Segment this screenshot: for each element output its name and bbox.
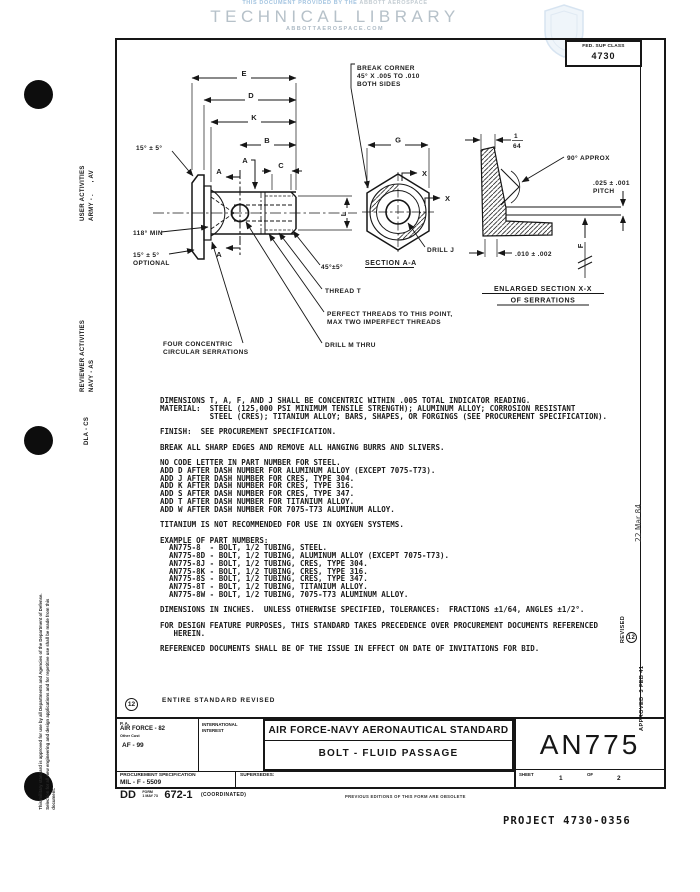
label-pitch-word: PITCH (593, 188, 615, 195)
label-drill-j: DRILL J (427, 247, 454, 254)
watermark-provided-line: THIS DOCUMENT PROVIDED BY THE ABBOTT AER… (150, 1, 520, 7)
label-break-corner-3: BOTH SIDES (357, 81, 401, 88)
international-interest-2: INTEREST (202, 728, 224, 733)
watermark-url: ABBOTTAEROSPACE.COM (150, 27, 520, 33)
revised-label: REVISED (620, 616, 626, 643)
label-perfect-threads-1: PERFECT THREADS TO THIS POINT, (327, 311, 453, 318)
label-enlarged-section-1: ENLARGED SECTION X-X (494, 286, 592, 293)
sheet-row: SHEET 1 OF 2 (514, 769, 666, 787)
dim-label-d: D (248, 91, 254, 100)
label-optional-angle: 15° ± 5° (133, 251, 159, 259)
dd-form-dd: DD (120, 789, 136, 801)
previous-editions-note: PREVIOUS EDITIONS OF THIS FORM ARE OBSOL… (345, 794, 466, 799)
dd-form-date: 1 MAY 73 (142, 794, 158, 798)
title-block: P. A. AIR FORCE - 82 Other Cust AF - 99 … (115, 717, 666, 789)
dim-label-k: K (251, 113, 257, 122)
label-90-approx: 90° APPROX (567, 154, 610, 162)
part-title: BOLT - FLUID PASSAGE (265, 748, 512, 759)
label-head-angle: 15° ± 5° (136, 144, 162, 152)
label-break-corner-1: BREAK CORNER (357, 65, 415, 72)
revision-note-circle: 12 (125, 693, 138, 711)
supersedes-label: SUPERSEDES: (240, 773, 274, 778)
dim-label-b: B (264, 136, 270, 145)
label-perfect-threads-2: MAX TWO IMPERFECT THREADS (327, 319, 441, 326)
procurement-spec-label: PROCUREMENT SPECIFICATION (120, 773, 196, 778)
standard-title-cell: AIR FORCE-NAVY AERONAUTICAL STANDARD BOL… (263, 719, 514, 771)
pa-value: AIR FORCE - 82 (120, 726, 165, 732)
dla-margin: DLA - CS (83, 417, 92, 445)
sheet-total: 2 (617, 775, 621, 782)
label-serration-width: .010 ± .002 (515, 251, 552, 258)
international-interest-1: INTERNATIONAL (202, 722, 238, 727)
label-thread-t: THREAD T (325, 288, 361, 295)
punch-hole-top (24, 80, 53, 109)
sheet-label: SHEET (519, 772, 534, 777)
leader-lines (212, 222, 324, 343)
watermark-brand: ABBOTT AEROSPACE (359, 0, 427, 6)
sheet-of-label: OF (587, 772, 593, 777)
dim-label-c: C (278, 161, 284, 170)
dim-label-g: G (395, 136, 401, 145)
scanned-standard-page: THIS DOCUMENT PROVIDED BY THE ABBOTT AER… (0, 0, 700, 892)
axis-label-x-side: X (445, 194, 450, 203)
procurement-spec-value: MIL - F - 5509 (120, 779, 161, 786)
watermark-title: TECHNICAL LIBRARY (150, 8, 520, 25)
section-arrow-label-a-top: A (216, 167, 222, 176)
revised-number-badge: 12 (626, 632, 637, 643)
dim-frac-numerator: 1 (514, 133, 518, 140)
title-block-divider (235, 771, 236, 787)
approved-date-margin: APPROVED 3 FEB 41 (639, 666, 645, 731)
axis-label-x-top: X (422, 169, 427, 178)
dd-form-line: DD FORM 1 MAY 73 672-1 (COORDINATED) (120, 789, 246, 803)
fed-sup-class-label: FED. SUP CLASS (567, 44, 640, 49)
label-break-corner-2: 45° X .005 TO .010 (357, 72, 420, 80)
label-pitch-value: .025 ± .001 (593, 180, 630, 187)
reviewer-activities-margin: REVIEWER ACTIVITIES NAVY - AS (79, 320, 97, 392)
watermark-provided-prefix: THIS DOCUMENT PROVIDED BY THE (242, 0, 357, 6)
dd-form-coordinated: (COORDINATED) (201, 792, 246, 798)
dim-label-f: F (576, 243, 585, 248)
section-aa-view (362, 145, 440, 252)
sheet-number: 1 (559, 775, 563, 782)
label-serrations-2: CIRCULAR SERRATIONS (163, 349, 249, 356)
label-tip-chamfer: 45°±5° (321, 263, 343, 271)
label-drill-m: DRILL M THRU (325, 342, 376, 349)
punch-hole-middle (24, 426, 53, 455)
revised-margin: REVISED 12 (614, 616, 643, 651)
title-block-divider (265, 740, 512, 741)
dim-label-e: E (241, 69, 246, 78)
specification-notes: DIMENSIONS T, A, F, AND J SHALL BE CONCE… (160, 397, 607, 653)
label-118-min: 118° MIN (133, 229, 163, 237)
dim-label-l: L (339, 211, 348, 216)
label-optional: OPTIONAL (133, 260, 170, 267)
other-cust-label: Other Cust (120, 734, 140, 738)
project-number: PROJECT 4730-0356 (503, 815, 631, 827)
label-section-aa: SECTION A-A (365, 260, 417, 267)
user-activities-margin: USER ACTIVITIES ARMY - . , AV (79, 165, 97, 221)
dd-form-number: 672-1 (164, 789, 192, 801)
dim-label-a: A (242, 156, 248, 165)
label-enlarged-section-2: OF SERRATIONS (511, 298, 576, 305)
angle-callouts (161, 151, 208, 254)
revision-number-badge: 12 (125, 698, 138, 711)
dd-form-small: FORM 1 MAY 73 (142, 790, 158, 799)
other-cust-value: AF - 99 (122, 742, 144, 749)
approval-statement-margin: This military standard is approved for u… (38, 593, 58, 809)
watermark-header: THIS DOCUMENT PROVIDED BY THE ABBOTT AER… (150, 1, 520, 32)
revision-note-text: ENTIRE STANDARD REVISED (162, 697, 275, 704)
technical-drawing: E D K B A C L A A 15° ± 5° 118° MIN 15° … (115, 50, 665, 390)
label-serrations-1: FOUR CONCENTRIC (163, 341, 233, 348)
revision-date-handwritten: 22 Mar 84 (634, 504, 643, 542)
dim-frac-denominator: 64 (513, 143, 521, 150)
title-block-divider (198, 719, 199, 771)
title-block-divider (117, 771, 514, 772)
standard-title: AIR FORCE-NAVY AERONAUTICAL STANDARD (265, 725, 512, 736)
